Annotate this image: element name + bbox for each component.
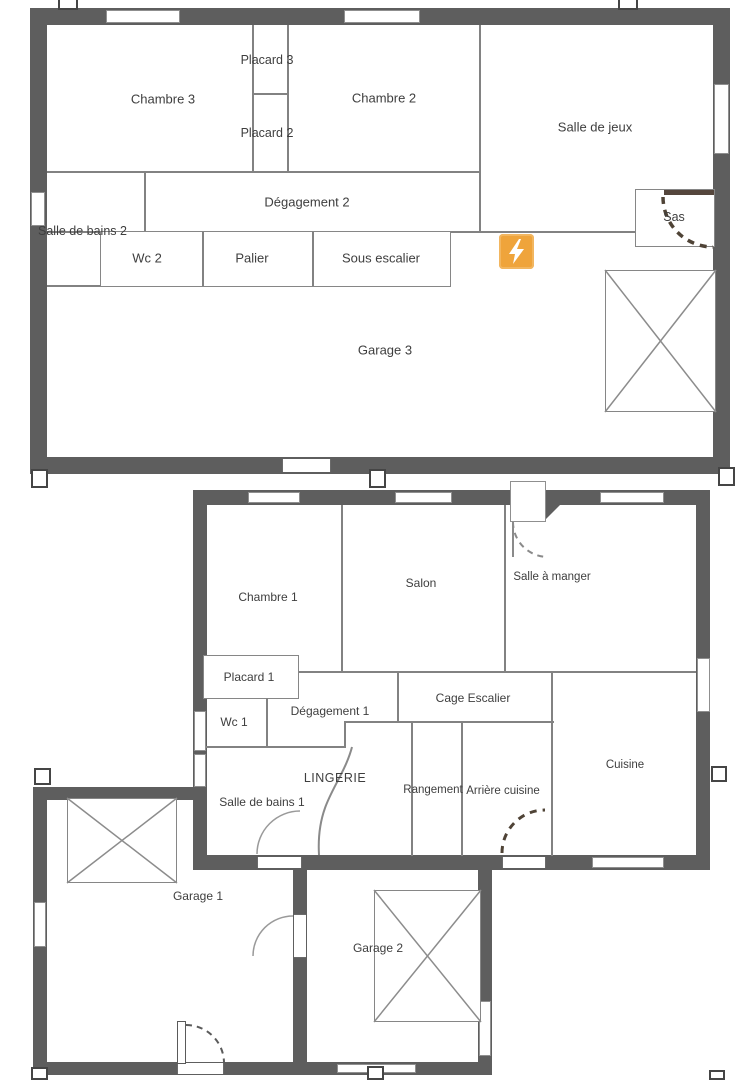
room-labels: Chambre 3 Placard 3 Chambre 2 Placard 2 … xyxy=(0,0,738,1080)
selection-handle[interactable] xyxy=(711,766,727,782)
floor-plan-canvas: Chambre 3 Placard 3 Chambre 2 Placard 2 … xyxy=(0,0,738,1080)
room-label-rangement: Rangement xyxy=(403,784,462,796)
selection-handle[interactable] xyxy=(58,0,78,10)
selection-handle[interactable] xyxy=(718,467,735,486)
room-label-sous-escalier: Sous escalier xyxy=(342,251,420,266)
selection-handle[interactable] xyxy=(709,1070,725,1080)
room-label-placard-1: Placard 1 xyxy=(224,670,275,684)
room-label-degagement-2: Dégagement 2 xyxy=(264,195,349,210)
room-label-garage-3: Garage 3 xyxy=(358,343,412,358)
room-label-placard-2: Placard 2 xyxy=(241,126,294,140)
room-label-degagement-1: Dégagement 1 xyxy=(291,704,370,718)
room-label-chambre-2: Chambre 2 xyxy=(352,91,416,106)
lightning-bolt-glyph xyxy=(499,234,534,269)
selection-handle[interactable] xyxy=(618,0,638,10)
room-label-cuisine: Cuisine xyxy=(606,759,644,771)
room-label-garage-1: Garage 1 xyxy=(173,889,223,903)
room-label-palier: Palier xyxy=(235,251,268,266)
selection-handle[interactable] xyxy=(31,1067,48,1080)
room-label-salle-de-bains-1: Salle de bains 1 xyxy=(219,795,304,809)
room-label-salle-a-manger: Salle à manger xyxy=(513,571,590,583)
room-label-arriere-cuisine: Arrière cuisine xyxy=(466,785,540,797)
selection-handle[interactable] xyxy=(369,469,386,488)
room-label-chambre-3: Chambre 3 xyxy=(131,92,195,107)
room-label-lingerie: LINGERIE xyxy=(304,771,366,785)
room-label-salle-de-jeux: Salle de jeux xyxy=(558,120,632,135)
room-label-wc-1: Wc 1 xyxy=(220,715,247,729)
lightning-icon[interactable] xyxy=(499,234,534,269)
room-label-garage-2: Garage 2 xyxy=(353,941,403,955)
selection-handle[interactable] xyxy=(34,768,51,785)
selection-handle[interactable] xyxy=(31,469,48,488)
room-label-salon: Salon xyxy=(406,576,437,590)
room-label-cage-escalier: Cage Escalier xyxy=(436,691,511,705)
room-label-salle-de-bains-2: Salle de bains 2 xyxy=(38,224,127,238)
room-label-chambre-1: Chambre 1 xyxy=(238,590,297,604)
selection-handle[interactable] xyxy=(367,1066,384,1080)
room-label-wc-2: Wc 2 xyxy=(132,251,162,266)
room-label-sas: Sas xyxy=(663,210,685,224)
room-label-placard-3: Placard 3 xyxy=(241,53,294,67)
